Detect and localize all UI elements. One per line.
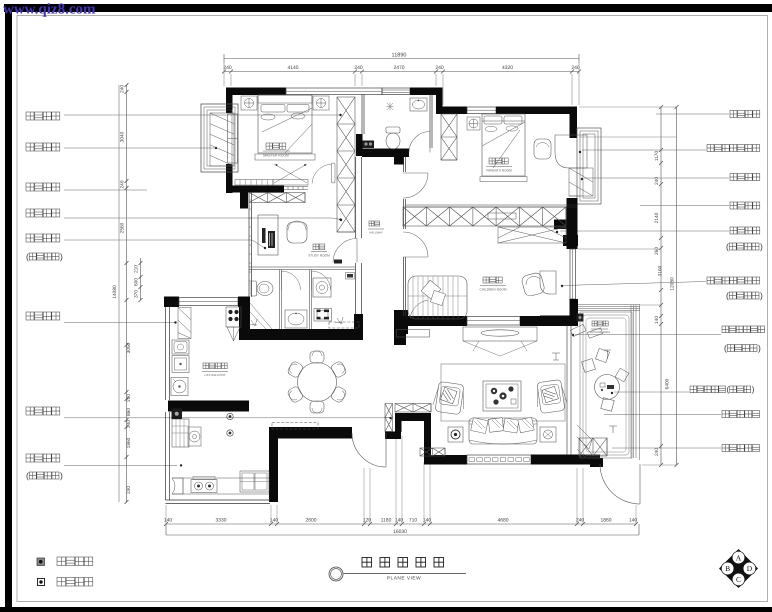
svg-text:240: 240	[126, 420, 132, 428]
svg-text:): )	[758, 343, 761, 353]
svg-text:2560: 2560	[120, 222, 126, 233]
svg-text:(: (	[26, 252, 29, 262]
svg-text:2470: 2470	[393, 65, 404, 71]
svg-text:370: 370	[134, 290, 140, 298]
svg-text:2140: 2140	[654, 212, 660, 223]
svg-text:240: 240	[120, 85, 126, 93]
svg-text:C: C	[736, 575, 741, 584]
svg-text:3050: 3050	[126, 342, 132, 353]
svg-text:B: B	[725, 564, 730, 573]
svg-text:www.qiz8.com: www.qiz8.com	[3, 2, 96, 18]
svg-text:4680: 4680	[497, 518, 508, 524]
svg-text:3330: 3330	[215, 518, 226, 524]
svg-text:1180: 1180	[381, 518, 392, 524]
svg-text:): )	[760, 291, 763, 301]
svg-text:210: 210	[134, 265, 140, 273]
svg-text:250: 250	[126, 394, 132, 402]
svg-text:140: 140	[654, 316, 660, 324]
svg-text:240: 240	[223, 65, 232, 71]
svg-text:14080: 14080	[112, 285, 118, 299]
svg-text:140: 140	[164, 518, 173, 524]
svg-text:HALLWAY: HALLWAY	[369, 231, 383, 235]
svg-text:11890: 11890	[392, 53, 407, 59]
svg-text:1860: 1860	[600, 518, 611, 524]
svg-text:12080: 12080	[670, 277, 676, 291]
svg-text:(: (	[724, 343, 727, 353]
svg-text:4140: 4140	[287, 65, 298, 71]
svg-text:240: 240	[126, 486, 132, 494]
svg-text:(: (	[726, 291, 729, 301]
svg-text:): )	[60, 471, 63, 481]
svg-text:): )	[752, 385, 755, 394]
svg-text:(: (	[26, 471, 29, 481]
svg-text:): )	[760, 242, 763, 252]
svg-text:PLANE VIEW: PLANE VIEW	[387, 576, 421, 582]
svg-text:LIFE BALCONY: LIFE BALCONY	[204, 373, 226, 377]
svg-text:240: 240	[654, 448, 660, 456]
svg-text:6400: 6400	[665, 378, 671, 389]
svg-text:MASTER ROOM: MASTER ROOM	[263, 154, 289, 158]
svg-text:710: 710	[409, 518, 418, 524]
svg-text:D: D	[747, 564, 753, 573]
svg-text:4320: 4320	[502, 65, 513, 71]
svg-text:1960: 1960	[126, 437, 132, 448]
svg-text:240: 240	[354, 65, 363, 71]
svg-text:1170: 1170	[654, 151, 660, 162]
svg-text:16030: 16030	[393, 529, 407, 535]
svg-text:(: (	[727, 385, 730, 394]
svg-text:2600: 2600	[305, 518, 316, 524]
svg-text:260: 260	[654, 247, 660, 255]
svg-text:240: 240	[571, 65, 580, 71]
svg-text:A: A	[736, 553, 742, 562]
svg-text:240: 240	[120, 180, 126, 188]
svg-text:): )	[60, 252, 63, 262]
svg-text:(: (	[726, 242, 729, 252]
svg-text:240: 240	[435, 65, 444, 71]
svg-text:STUDY ROOM: STUDY ROOM	[308, 254, 330, 258]
svg-text:860: 860	[126, 408, 132, 416]
svg-text:CHILDREN ROOM: CHILDREN ROOM	[479, 288, 506, 292]
svg-text:3040: 3040	[120, 131, 126, 142]
svg-text:600: 600	[134, 278, 140, 286]
svg-text:PARENTS ROOM: PARENTS ROOM	[486, 169, 512, 173]
svg-text:3160: 3160	[658, 265, 664, 276]
